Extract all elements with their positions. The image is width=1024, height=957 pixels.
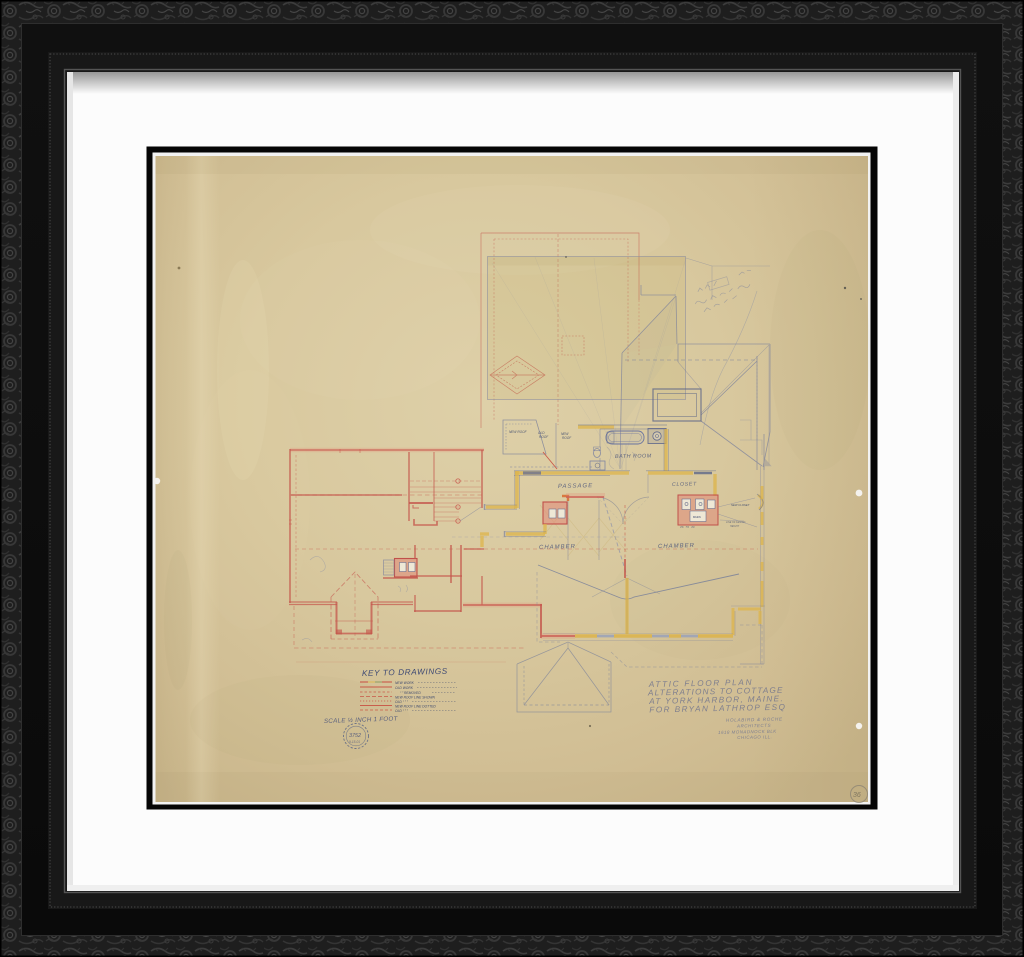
svg-text:3752: 3752 [349,733,361,739]
svg-text:OLD “ ” ”: OLD “ ” ” [395,709,409,713]
svg-text:BASIN: BASIN [693,515,701,519]
svg-text:ROOF: ROOF [562,436,572,440]
svg-text:CHICAGO ILL.: CHICAGO ILL. [737,734,772,740]
svg-text:HEIGHT: HEIGHT [730,525,740,528]
svg-text:NEW ROOF LINE DOTTED: NEW ROOF LINE DOTTED [395,705,436,709]
svg-text:CHAMBER: CHAMBER [539,544,576,551]
svg-text:NEW WORK: NEW WORK [395,681,415,685]
svg-text:OLD WORK: OLD WORK [395,686,414,690]
svg-text:ARCHITECTS: ARCHITECTS [736,723,771,729]
svg-text:3'6 7'0 4'0: 3'6 7'0 4'0 [680,525,695,529]
svg-text:PASSAGE: PASSAGE [558,483,593,490]
svg-text:CLOSET: CLOSET [672,481,697,488]
svg-text:NEW ROOF LINE SHOWN: NEW ROOF LINE SHOWN [395,696,435,700]
svg-text:OLD “ ” ”: OLD “ ” ” [395,700,409,704]
svg-text:9-15-01: 9-15-01 [349,740,360,744]
svg-text:LINE OF CEILING: LINE OF CEILING [726,521,746,524]
svg-text:ROOF: ROOF [539,435,549,439]
svg-text:NEW ROOF: NEW ROOF [509,430,528,434]
svg-text:36: 36 [853,792,861,799]
svg-text:NEW CLOSET: NEW CLOSET [731,503,750,507]
svg-text:BATH ROOM: BATH ROOM [615,453,652,460]
svg-text:“ ” REMOVED: “ ” REMOVED [400,691,421,695]
